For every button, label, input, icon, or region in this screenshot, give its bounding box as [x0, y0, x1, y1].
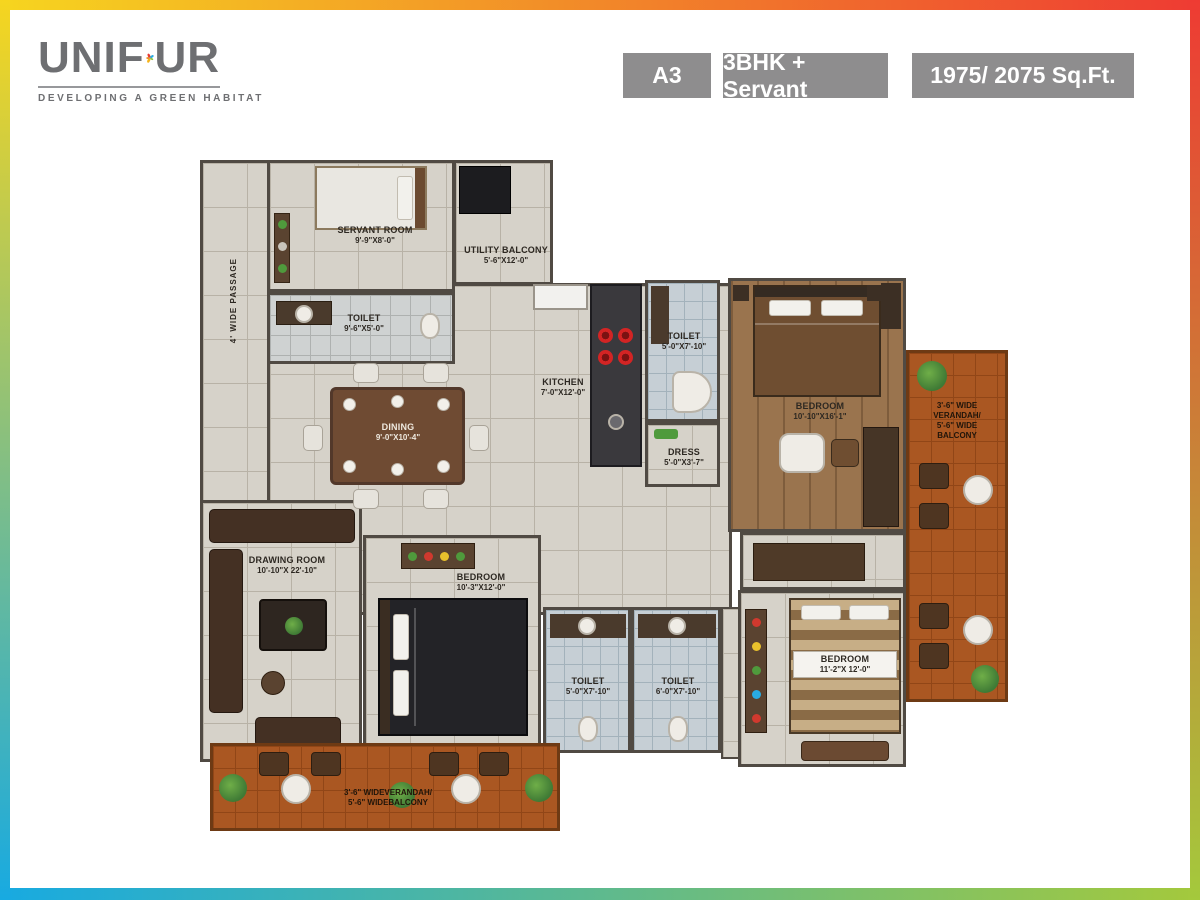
dining-chair — [303, 425, 323, 451]
blanket-fold — [755, 323, 879, 325]
plant-icon — [525, 774, 553, 802]
plate-icon — [437, 398, 450, 411]
toilet-vanity — [638, 614, 716, 638]
verandah-table — [963, 475, 993, 505]
wardrobe-shelf — [745, 609, 767, 733]
shelf-plant-icon — [278, 220, 287, 229]
unit-area-badge: 1975/ 2075 Sq.Ft. — [912, 53, 1134, 98]
kitchen-label: KITCHEN 7'-0"X12'-0" — [517, 377, 609, 398]
plant-icon — [917, 361, 947, 391]
utility-balcony-label: UTILITY BALCONY 5'-6"X12'-0" — [456, 245, 556, 266]
brand-name: UNIF UR — [38, 36, 220, 80]
shelf-item-icon — [752, 714, 761, 723]
verandah-chair — [429, 752, 459, 776]
pillow — [769, 300, 811, 316]
mat-icon — [654, 429, 678, 439]
servant-toilet-label: TOILET 9'-6"X5'-0" — [304, 313, 424, 334]
plant-icon — [971, 665, 999, 693]
dining-chair — [423, 489, 449, 509]
plate-icon — [343, 460, 356, 473]
bench — [801, 741, 889, 761]
frame-left — [0, 0, 10, 900]
bedroom-master-label: BEDROOM 10'-10"X16'-1" — [755, 401, 885, 422]
pillow — [393, 670, 409, 716]
console-cabinet — [753, 543, 865, 581]
passage-label: 4' WIDE PASSAGE — [229, 258, 238, 343]
burner-icon — [598, 350, 613, 365]
dining-chair — [353, 363, 379, 383]
tv-panel — [459, 166, 511, 214]
verandah-chair — [919, 643, 949, 669]
servant-shelf — [274, 213, 290, 283]
shelf-item-icon — [408, 552, 417, 561]
dress-label: DRESS 5'-0"X3'-7" — [650, 447, 718, 468]
toilet-top-label: TOILET 5'-0"X7'-10" — [652, 331, 716, 352]
wardrobe — [881, 283, 901, 329]
shelf-item-icon — [752, 690, 761, 699]
plate-icon — [391, 463, 404, 476]
dining-chair — [423, 363, 449, 383]
room-drawing: DRAWING ROOM 10'-10"X 22'-10" — [200, 500, 362, 762]
room-dress: DRESS 5'-0"X3'-7" — [645, 422, 720, 487]
page: UNIF UR DEVELOPING A GREEN HABITAT A3 3B… — [0, 0, 1200, 900]
sofa — [209, 509, 355, 543]
shelf-item-icon — [752, 642, 761, 651]
room-servant: SERVANT ROOM 9'-9"X8'-0" — [267, 160, 455, 292]
plant-icon — [285, 617, 303, 635]
wc-icon — [668, 716, 688, 742]
shelf-item-icon — [752, 666, 761, 675]
servant-bed — [315, 166, 427, 230]
dining-table: DINING 9'-0"X10'-4" — [330, 387, 465, 485]
toilet-vanity — [550, 614, 626, 638]
bed — [378, 598, 528, 736]
headboard — [380, 600, 390, 734]
floor-plan: 4' WIDE PASSAGE SERVANT ROOM 9'-9"X8'-0" — [195, 155, 1010, 845]
pillow — [801, 605, 841, 620]
dining-label: DINING 9'-0"X10'-4" — [339, 422, 457, 443]
wardrobe-shelf — [401, 543, 475, 569]
dining-chair — [469, 425, 489, 451]
unit-type-badge: 3BHK + Servant — [723, 53, 888, 98]
room-servant-toilet: TOILET 9'-6"X5'-0" — [267, 292, 455, 364]
burner-icon — [618, 328, 633, 343]
room-toilet-top: TOILET 5'-0"X7'-10" — [645, 280, 720, 422]
shelf-plant-icon — [278, 264, 287, 273]
verandah-chair — [259, 752, 289, 776]
plate-icon — [437, 460, 450, 473]
shelf-item-icon — [456, 552, 465, 561]
logo-divider — [38, 86, 220, 88]
wc-icon — [578, 716, 598, 742]
burner-icon — [598, 328, 613, 343]
pouf — [261, 671, 285, 695]
logo-tagline: DEVELOPING A GREEN HABITAT — [38, 93, 220, 104]
room-utility-balcony: UTILITY BALCONY 5'-6"X12'-0" — [453, 160, 553, 285]
shelf-item-icon — [440, 552, 449, 561]
verandah-right: 3'-6" WIDE VERANDAH/ 5'-6" WIDE BALCONY — [906, 350, 1008, 702]
unit-code-badge: A3 — [623, 53, 711, 98]
bathtub-icon — [672, 371, 712, 413]
verandah-chair — [919, 503, 949, 529]
nightstand — [733, 285, 749, 301]
verandah-table — [963, 615, 993, 645]
shelf-item-icon — [424, 552, 433, 561]
coffee-table — [259, 599, 327, 651]
sink-icon — [668, 617, 686, 635]
pillow — [849, 605, 889, 620]
room-bedroom-bottom: BEDROOM 11'-2"X 12'-0" — [738, 590, 906, 767]
drawing-room-label: DRAWING ROOM 10'-10"X 22'-10" — [215, 555, 359, 576]
verandah-bottom: 3'-6" WIDEVERANDAH/ 5'-6" WIDEBALCONY — [210, 743, 560, 831]
blanket-fold — [414, 608, 416, 726]
frame-bottom — [0, 888, 1200, 900]
servant-pillow — [397, 176, 413, 220]
sink-icon — [578, 617, 596, 635]
wardrobe — [863, 427, 899, 527]
bedroom-bottom-label: BEDROOM 11'-2"X 12'-0" — [793, 651, 897, 678]
shelf-item-icon — [278, 242, 287, 251]
servant-bed-headboard — [415, 168, 425, 228]
kitchen-sink — [533, 284, 588, 310]
room-corridor-right — [740, 532, 906, 590]
logo-text-right: UR — [154, 36, 220, 80]
toilet-left-label: TOILET 5'-0"X7'-10" — [550, 676, 626, 697]
bedroom-mid-label: BEDROOM 10'-3"X12'-0" — [426, 572, 536, 593]
room-passage: 4' WIDE PASSAGE — [200, 160, 270, 545]
ottoman — [831, 439, 859, 467]
frame-top — [0, 0, 1200, 10]
verandah-chair — [919, 463, 949, 489]
frame-right — [1190, 0, 1200, 900]
room-toilet-right: TOILET 6'-0"X7'-10" — [631, 607, 721, 753]
plant-icon — [219, 774, 247, 802]
kitchen-counter — [590, 284, 642, 467]
servant-room-label: SERVANT ROOM 9'-9"X8'-0" — [300, 225, 450, 246]
plate-icon — [343, 398, 356, 411]
pillow — [393, 614, 409, 660]
verandah-chair — [919, 603, 949, 629]
room-toilet-left: TOILET 5'-0"X7'-10" — [543, 607, 631, 753]
master-bed — [753, 285, 881, 397]
hob-knob-icon — [608, 414, 624, 430]
verandah-chair — [479, 752, 509, 776]
plate-icon — [391, 395, 404, 408]
logo-text-left: UNIF — [38, 36, 145, 80]
verandah-chair — [311, 752, 341, 776]
shelf-item-icon — [752, 618, 761, 627]
toilet-right-label: TOILET 6'-0"X7'-10" — [639, 676, 717, 697]
pinwheel-icon — [145, 36, 155, 80]
verandah-right-label: 3'-6" WIDE VERANDAH/ 5'-6" WIDE BALCONY — [913, 401, 1001, 441]
room-bedroom-mid: BEDROOM 10'-3"X12'-0" — [363, 535, 541, 747]
master-headboard — [755, 287, 879, 297]
room-bedroom-master: BEDROOM 10'-10"X16'-1" — [728, 278, 906, 532]
armchair — [779, 433, 825, 473]
pillow — [821, 300, 863, 316]
burner-icon — [618, 350, 633, 365]
dining-chair — [353, 489, 379, 509]
verandah-bottom-label: 3'-6" WIDEVERANDAH/ 5'-6" WIDEBALCONY — [288, 788, 488, 808]
brand-logo: UNIF UR DEVELOPING A GREEN HABITAT — [38, 36, 220, 104]
